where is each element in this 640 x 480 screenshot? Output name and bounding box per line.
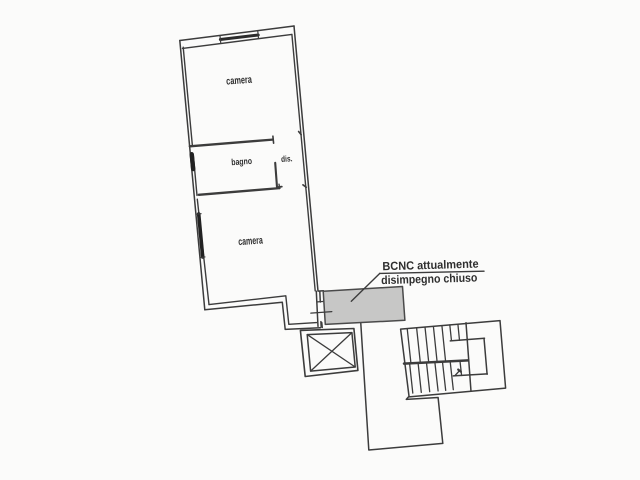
svg-text:bagno: bagno [231, 156, 253, 167]
svg-text:camera: camera [226, 74, 253, 88]
svg-text:disimpegno chiuso: disimpegno chiuso [381, 271, 478, 288]
svg-text:dis.: dis. [281, 153, 293, 164]
svg-text:camera: camera [238, 234, 263, 248]
